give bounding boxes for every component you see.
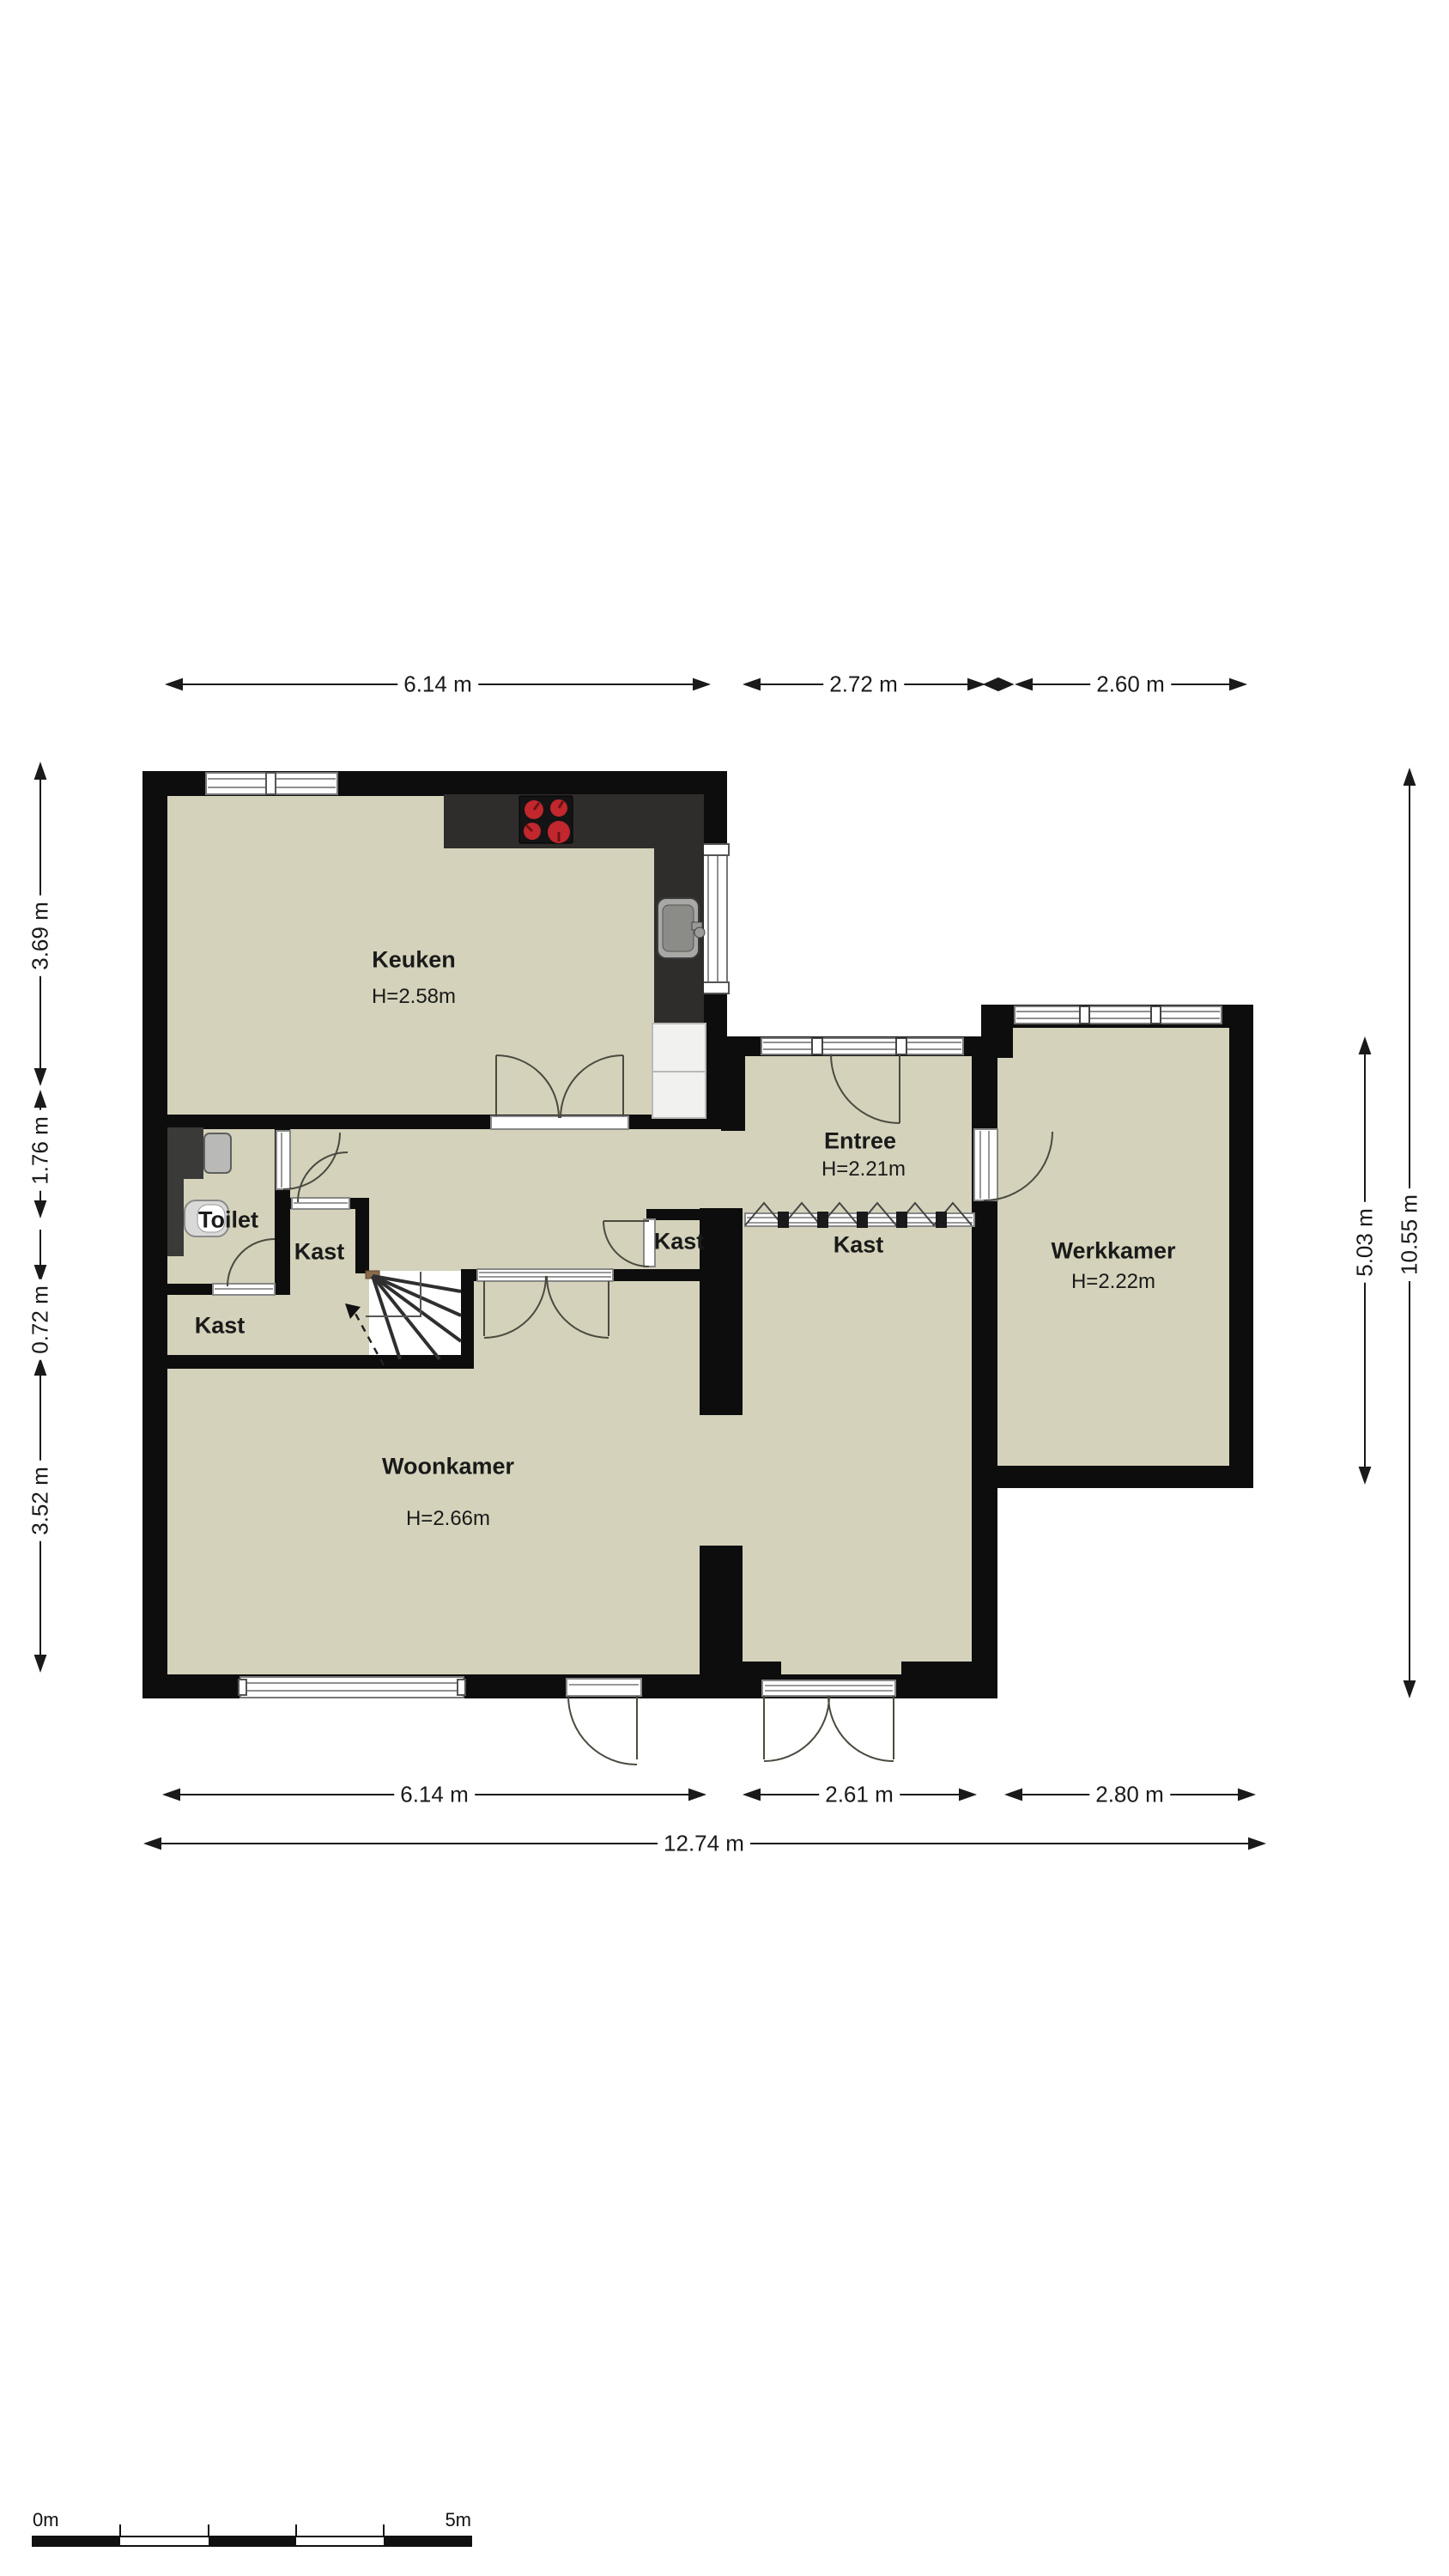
dim-diamond (985, 678, 1012, 690)
dim-top-2: 2.72 m (823, 671, 904, 698)
dim-right-1: 5.03 m (1352, 1202, 1379, 1283)
scale-end-label: 5m (445, 2509, 471, 2531)
scale-start-label: 0m (33, 2509, 59, 2531)
floorplan-drawing (0, 0, 1449, 2576)
dim-right-2: 10.55 m (1397, 1188, 1423, 1281)
room-height-werkkamer: H=2.22m (1071, 1270, 1155, 1294)
toilet-sink-icon (204, 1133, 231, 1173)
toilet-counter-side (167, 1127, 184, 1256)
dim-left-2: 1.76 m (27, 1110, 54, 1191)
room-height-keuken: H=2.58m (372, 985, 456, 1009)
door-woonkamer-exterior (567, 1679, 641, 1765)
sink-icon (658, 898, 705, 958)
stove-icon (519, 796, 573, 843)
dim-left-1: 3.69 m (27, 896, 54, 976)
kitchen-appliances (652, 1024, 706, 1118)
window-woonkamer-bottom (239, 1677, 465, 1698)
window-keuken-right (700, 844, 729, 993)
dim-left-4: 3.52 m (27, 1461, 54, 1541)
room-height-woonkamer: H=2.66m (406, 1507, 490, 1531)
room-label-kast-gang: Kast (654, 1229, 705, 1255)
room-label-kast-trap: Kast (294, 1239, 345, 1266)
room-label-kast-entree: Kast (834, 1232, 884, 1259)
door-extension-french (762, 1680, 895, 1761)
room-height-entree: H=2.21m (822, 1157, 906, 1182)
kitchen-counter-top (444, 794, 704, 848)
dim-top-3: 2.60 m (1090, 671, 1171, 698)
room-label-entree: Entree (824, 1128, 896, 1155)
dim-bottom-1: 6.14 m (394, 1782, 475, 1808)
room-label-woonkamer: Woonkamer (382, 1454, 514, 1480)
window-werkkamer-top (1015, 1006, 1222, 1024)
room-label-werkkamer: Werkkamer (1051, 1238, 1175, 1265)
window-keuken-top (206, 773, 337, 794)
dim-left-3: 0.72 m (27, 1279, 54, 1360)
dim-bottom-2: 2.61 m (819, 1782, 900, 1808)
window-entree-top (761, 1038, 963, 1054)
floorplan-page: Keuken H=2.58m Entree H=2.21m Werkkamer … (0, 0, 1449, 2576)
room-label-kast-hal: Kast (195, 1313, 246, 1340)
scale-bar (33, 2524, 471, 2546)
dim-top-1: 6.14 m (397, 671, 478, 698)
room-label-keuken: Keuken (372, 947, 456, 974)
dim-bottom-3: 2.80 m (1089, 1782, 1170, 1808)
dim-bottom-total: 12.74 m (658, 1831, 750, 1857)
room-label-toilet: Toilet (198, 1207, 258, 1234)
